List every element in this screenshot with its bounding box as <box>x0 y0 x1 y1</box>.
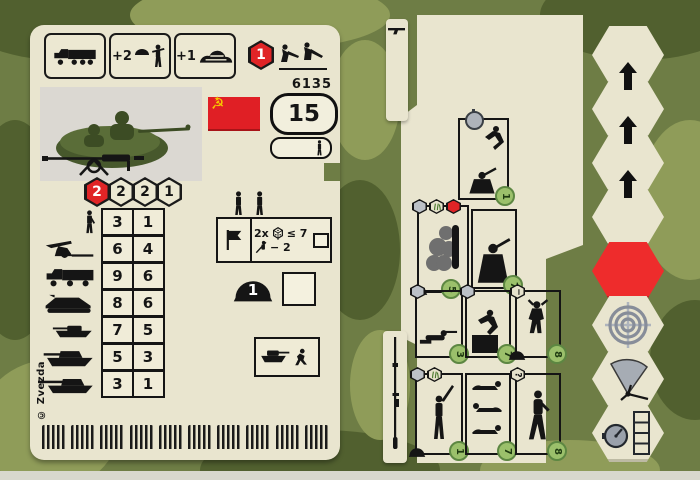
truck-icon <box>52 43 98 69</box>
order-roll-value: 8 <box>547 441 567 461</box>
card-notch <box>324 163 340 181</box>
ammo-group <box>305 425 328 449</box>
infantry-icon <box>315 140 324 156</box>
defense-value: 1 <box>248 281 258 299</box>
helmet-icon <box>508 349 526 361</box>
stats-row-medium-tank: 5 3 <box>38 344 165 370</box>
stat-close: 3 <box>101 208 134 236</box>
crawling-soldiers-icon <box>468 379 506 447</box>
stat-long: 3 <box>132 343 165 371</box>
stat-long: 6 <box>132 262 165 290</box>
order-crawl-advance: 7 <box>465 373 511 455</box>
movement-track: 2 2 2 1 <box>84 177 182 207</box>
climbing-soldier-icon <box>480 124 506 150</box>
unit-card-back: 1 5 7 <box>383 13 587 465</box>
movement-value: 1 <box>164 184 174 200</box>
movement-hex: 2 <box>108 177 134 207</box>
smg-icon <box>387 24 407 36</box>
copyright-text: © Zvezda <box>36 361 47 420</box>
entrenching-soldiers-icon <box>277 40 329 70</box>
order-roll-value: 8 <box>547 344 567 364</box>
ammo-group <box>100 425 123 449</box>
grass-icon <box>432 202 442 211</box>
order-march-move: ? 8 <box>515 373 561 455</box>
stats-row-light-tank: 7 5 <box>38 317 165 343</box>
stats-row-at-gun: 6 4 <box>38 236 165 262</box>
order-roll-value: 7 <box>497 441 517 461</box>
tank-and-runner-icon <box>260 342 314 372</box>
product-code: 6135 <box>270 77 332 92</box>
movement-value: 2 <box>92 184 102 200</box>
maxim-mg-icon <box>42 149 172 177</box>
order-smoke-screen: 5 <box>417 205 469 293</box>
flag-cell <box>218 219 252 261</box>
die-icon <box>271 226 285 240</box>
ammo-group <box>42 425 65 449</box>
stat-long: 5 <box>132 316 165 344</box>
target-icon <box>604 301 652 349</box>
cover-bonus-box: +1 <box>174 33 236 79</box>
stat-close: 3 <box>101 370 134 398</box>
soldier-firing-up-icon <box>425 383 455 443</box>
squad-bonus-box: +2 <box>109 33 171 79</box>
ammo-tally-track <box>42 425 328 449</box>
soviet-flag: ☭ ★ <box>208 97 260 131</box>
hit-marker-box <box>282 272 316 306</box>
helmet-and-soldier-icon <box>134 43 168 69</box>
stat-long: 4 <box>132 235 165 263</box>
at-gun-icon <box>44 238 96 260</box>
prone-shooter-icon <box>418 326 458 348</box>
stats-row-halftrack: 8 6 <box>38 290 165 316</box>
stat-long: 1 <box>132 208 165 236</box>
rally-check-box: 2x ≤ 7 − 2 <box>216 217 332 263</box>
result-mini-box <box>313 233 329 248</box>
mg-fire-arc-icon <box>601 356 655 402</box>
entrench-action-group: 1 <box>248 33 334 77</box>
entrench-cost-value: 1 <box>256 47 266 63</box>
stat-close: 8 <box>101 289 134 317</box>
stat-close: 7 <box>101 316 134 344</box>
casualty-icon <box>254 240 268 254</box>
tank-escort-box <box>254 337 320 377</box>
movement-hex: 2 <box>84 177 110 207</box>
ammo-group <box>276 425 299 449</box>
infantry-icon <box>83 210 96 234</box>
stat-long: 6 <box>132 289 165 317</box>
defense-helmet: 1 <box>232 275 274 305</box>
unit-card-front: +2 +1 1 6135 <box>30 25 340 460</box>
light-tank-icon <box>50 319 96 341</box>
camo-table-background: +2 +1 1 6135 <box>0 0 700 480</box>
ammo-group <box>217 425 240 449</box>
descending-soldier-icon <box>525 298 551 340</box>
movement-hex: 1 <box>156 177 182 207</box>
point-cost-value: 15 <box>288 101 320 127</box>
point-cost-box: 15 <box>270 93 338 135</box>
rifle-icon <box>390 337 400 455</box>
ammo-group <box>130 425 153 449</box>
marching-soldier-icon <box>525 389 551 443</box>
minus-label: − <box>512 288 522 296</box>
transport-option-box <box>44 33 106 79</box>
stats-row-heavy-tank: 3 1 <box>38 371 165 397</box>
table-edge <box>0 471 700 480</box>
order-aimed-fire-up: 1 <box>415 373 463 455</box>
stat-close: 5 <box>101 343 134 371</box>
red-star-icon: ★ <box>214 95 220 103</box>
order-roll-value: 1 <box>495 186 515 206</box>
grass-icon <box>430 370 440 379</box>
rally-rule-cell: 2x ≤ 7 − 2 <box>252 219 330 261</box>
ammo-group <box>188 425 211 449</box>
ammo-group <box>159 425 182 449</box>
order-climb-obstacle: 7 <box>465 290 511 358</box>
advance-arrow-icon <box>619 62 637 92</box>
smg-tab <box>386 19 408 121</box>
rally-flag-icon <box>224 227 244 253</box>
unit-type-tab <box>270 137 332 159</box>
helmet-icon <box>408 446 426 458</box>
stat-close: 6 <box>101 235 134 263</box>
compass-and-track-icon <box>601 409 655 457</box>
ammo-group <box>71 425 94 449</box>
advance-arrow-icon <box>619 116 637 146</box>
plus-one-label: +1 <box>176 49 196 64</box>
question-label: ? <box>512 372 522 377</box>
advance-arrow-icon <box>619 170 637 200</box>
squad-size-icons <box>228 191 274 216</box>
dice-multiplier: 2x <box>254 227 269 240</box>
movement-value: 2 <box>116 184 126 200</box>
dice-threshold: ≤ 7 <box>287 227 308 240</box>
plus-two-label: +2 <box>112 49 132 64</box>
morale-modifier: − 2 <box>270 241 291 254</box>
order-dig-in-mg-nest: 7 <box>471 209 517 289</box>
movement-hex: 2 <box>132 177 158 207</box>
rifle-tab <box>383 331 407 463</box>
order-ambush-at-obstacle: 1 <box>458 118 509 200</box>
stats-row-infantry: 3 1 <box>38 209 165 235</box>
sandbag-emplacement-icon <box>198 45 234 67</box>
stats-row-truck: 9 6 <box>38 263 165 289</box>
stat-long: 1 <box>132 370 165 398</box>
order-climb-down: − 8 <box>515 290 561 358</box>
stat-close: 9 <box>101 262 134 290</box>
ammo-group <box>246 425 269 449</box>
smoke-cloud-icon <box>422 219 462 275</box>
order-prone-fire: 3 <box>415 290 463 358</box>
medium-tank-icon <box>42 345 96 369</box>
entrench-cost-hex: 1 <box>248 40 274 70</box>
halftrack-icon <box>42 292 96 314</box>
truck-icon <box>44 264 96 288</box>
movement-value: 2 <box>140 184 150 200</box>
